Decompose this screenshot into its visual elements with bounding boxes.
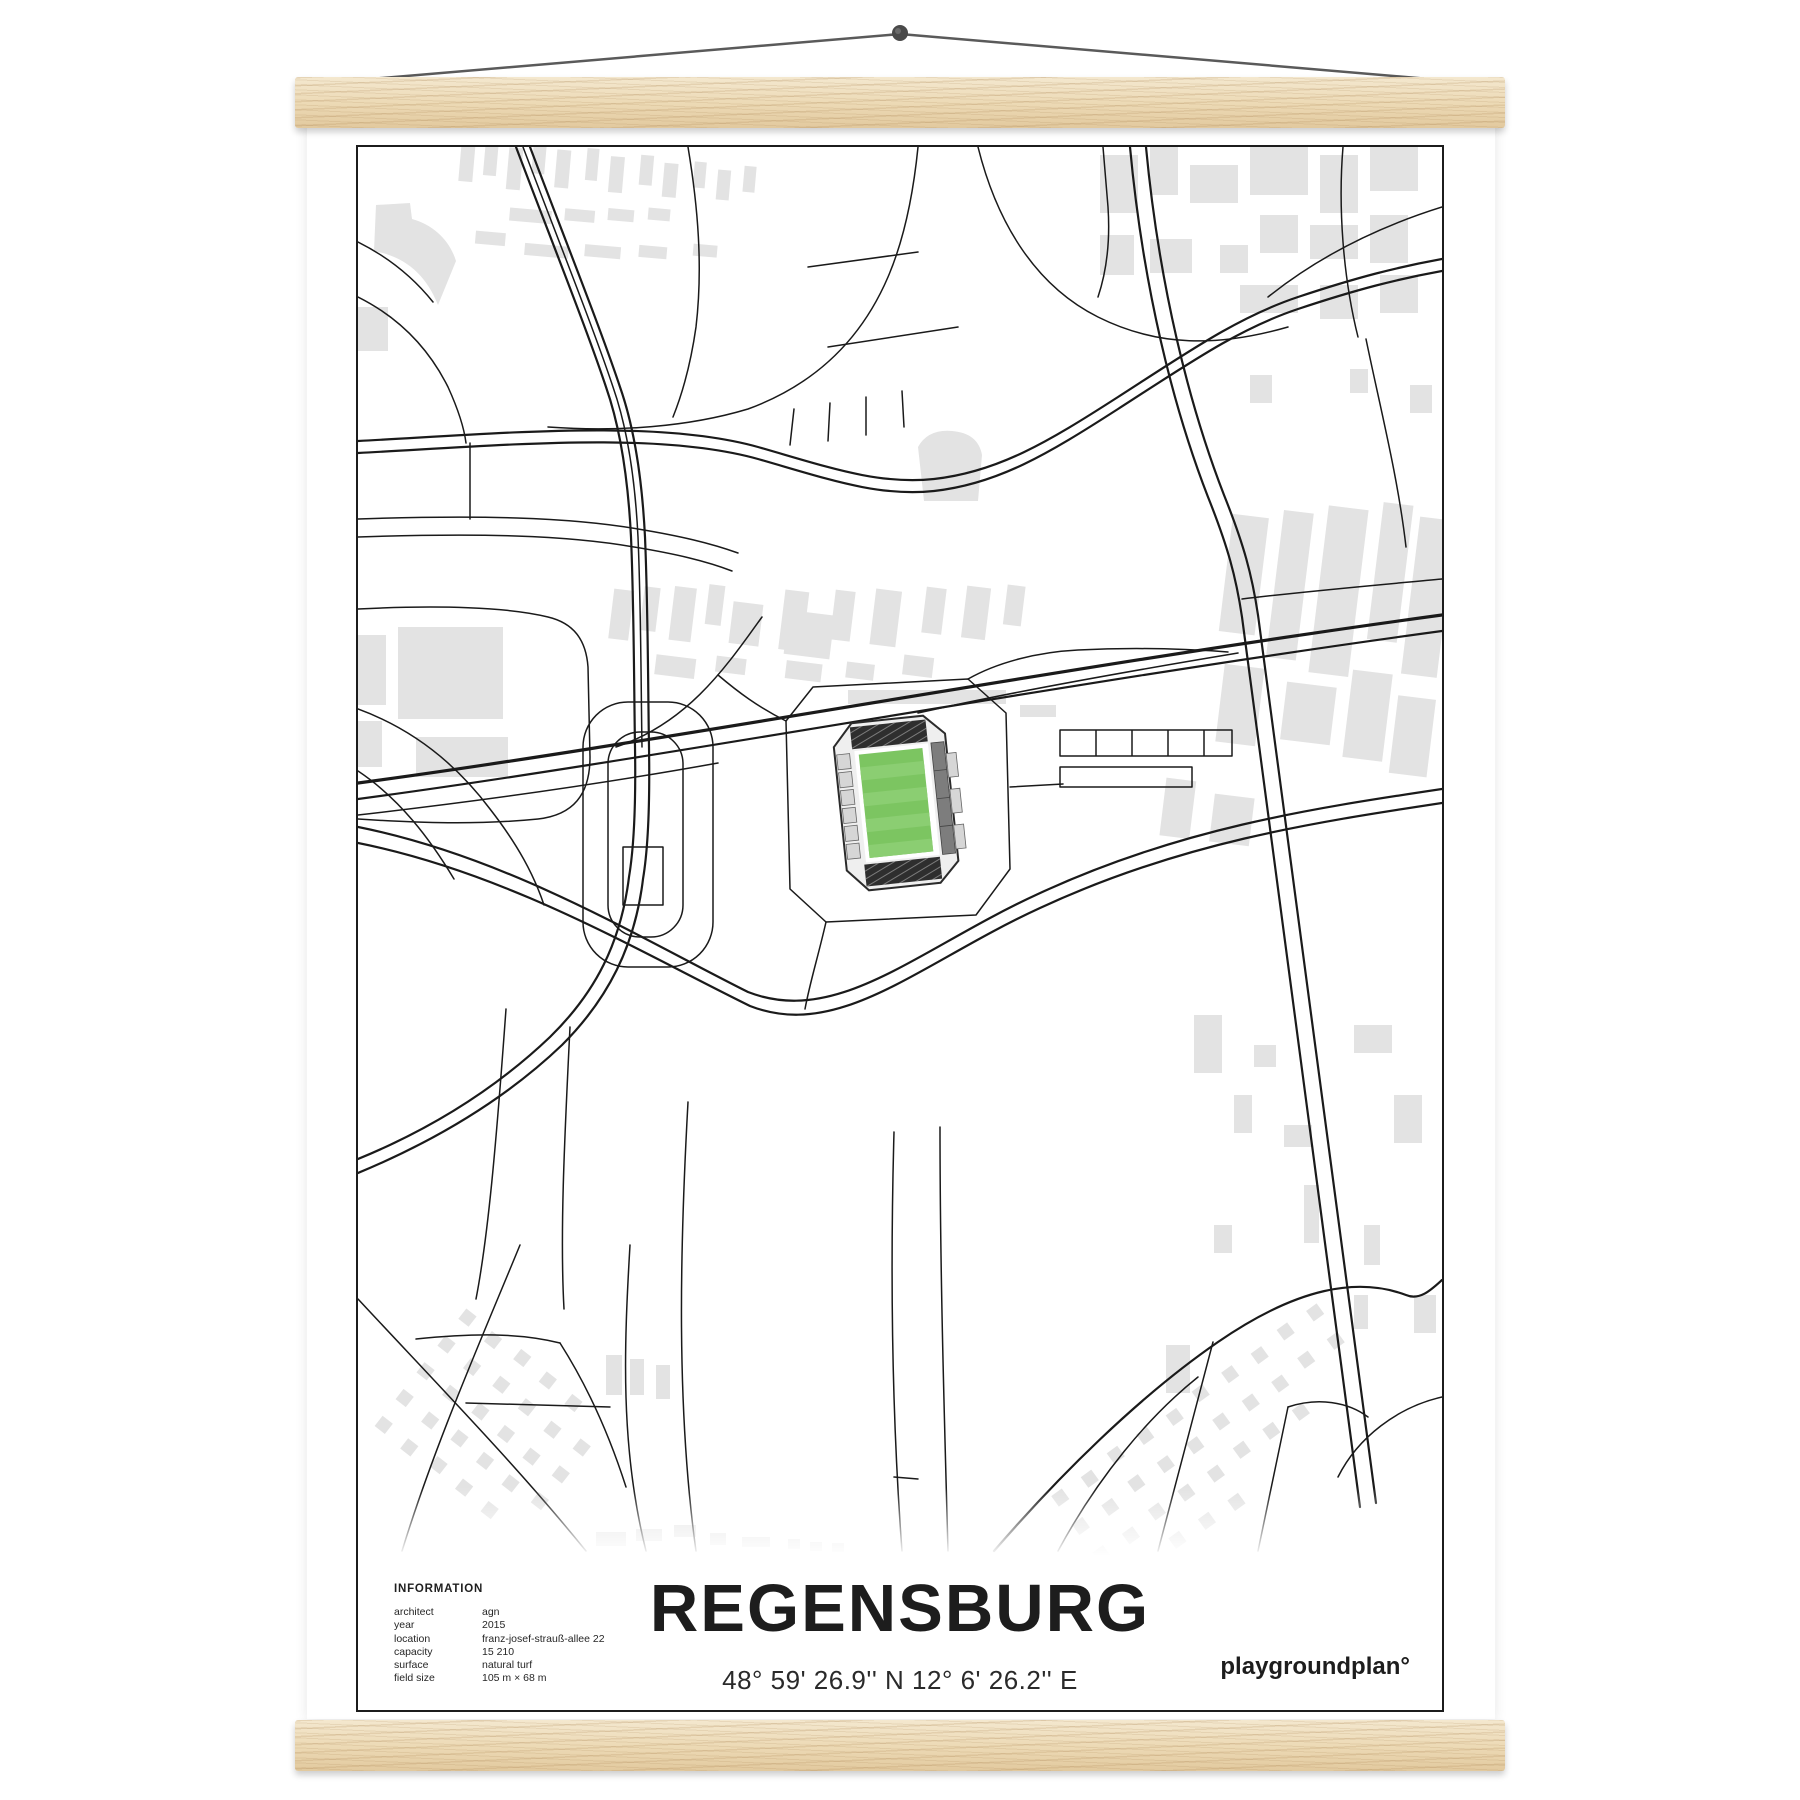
brand-logo: playgroundplan° (1220, 1653, 1410, 1681)
top-wood-bar (295, 77, 1505, 128)
map-artwork (358, 147, 1442, 1710)
poster-title: REGENSBURG (358, 1575, 1442, 1642)
bottom-wood-bar (295, 1720, 1505, 1771)
poster-paper: INFORMATION architectagn year2015 locati… (307, 95, 1495, 1719)
map-frame: INFORMATION architectagn year2015 locati… (356, 145, 1444, 1712)
poster-mockup-scene: INFORMATION architectagn year2015 locati… (0, 0, 1800, 1800)
stadium (832, 713, 970, 893)
nail-icon (892, 25, 908, 41)
info-value: 15 210 (482, 1646, 605, 1659)
info-label: capacity (394, 1646, 482, 1659)
